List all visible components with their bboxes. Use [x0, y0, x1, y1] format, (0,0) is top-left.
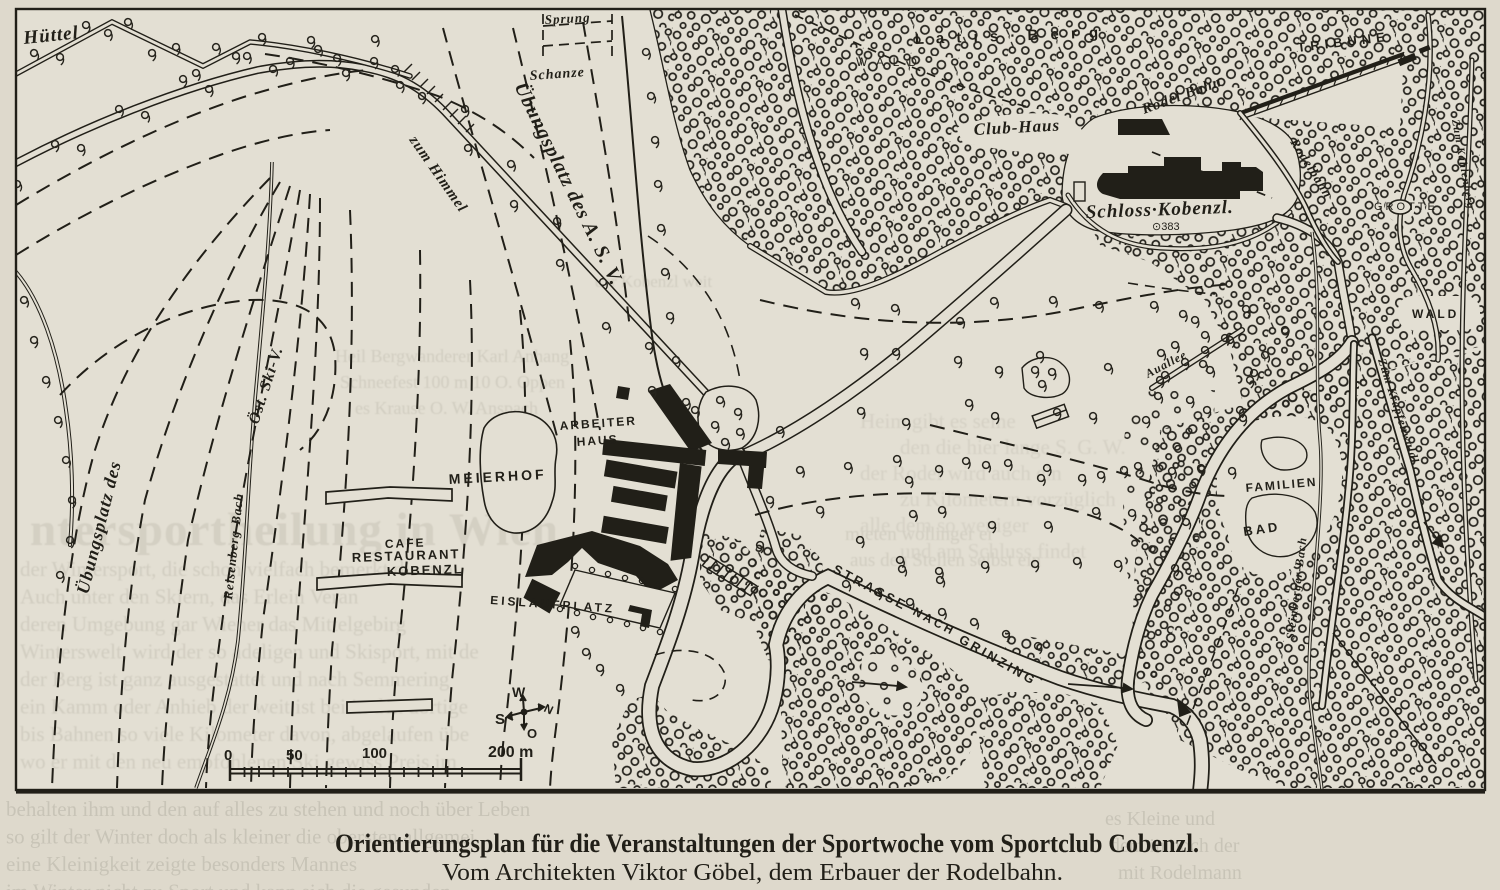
svg-text:behalten ihm und den auf alles: behalten ihm und den auf alles zu stehen… — [6, 797, 531, 821]
svg-text:Heim gibt es seine: Heim gibt es seine — [860, 409, 1016, 433]
svg-text:den die hier lange S. G. W.: den die hier lange S. G. W. — [900, 435, 1126, 459]
svg-text:eine Kleinigkeit zeigte besond: eine Kleinigkeit zeigte besonders Mannes — [6, 852, 357, 876]
svg-text:50: 50 — [286, 747, 303, 764]
svg-text:mit Rodelmann: mit Rodelmann — [1118, 862, 1242, 884]
svg-text:es Kleine und: es Kleine und — [1105, 808, 1215, 830]
svg-text:W: W — [512, 684, 526, 700]
svg-text:Heil Bergwanderer Karl Anhang: Heil Bergwanderer Karl Anhang — [335, 346, 569, 366]
svg-text:der Rodel wird auch ein: der Rodel wird auch ein — [860, 461, 1062, 485]
svg-text:aus den Stellen selbst ein: aus den Stellen selbst ein — [850, 550, 1042, 571]
svg-text:deren Umgebung gar Wiener das: deren Umgebung gar Wiener das Mittelgebi… — [20, 612, 407, 636]
svg-text:⊙383: ⊙383 — [1152, 221, 1180, 233]
svg-text:WALD: WALD — [1412, 307, 1459, 321]
svg-text:bis Bahnen so viele Kilometer: bis Bahnen so viele Kilometer davon, abg… — [20, 722, 469, 746]
svg-text:GROTTE: GROTTE — [1374, 201, 1438, 213]
svg-text:S: S — [495, 711, 505, 728]
svg-text:O: O — [527, 726, 537, 741]
svg-text:W A L D: W A L D — [856, 55, 920, 69]
svg-text:Schneefest 100 m 10 O. Oppen: Schneefest 100 m 10 O. Oppen — [340, 372, 565, 392]
svg-text:zu Kilometern vorzüglich: zu Kilometern vorzüglich — [900, 487, 1116, 511]
svg-text:100: 100 — [362, 745, 387, 762]
svg-text:Winterswelt, wird der so adeli: Winterswelt, wird der so adeligen und Sk… — [20, 640, 479, 664]
svg-text:Orientierungsplan für die Vera: Orientierungsplan für die Veranstaltunge… — [335, 829, 1199, 858]
svg-text:Auch unter den Skiern, das Erl: Auch unter den Skiern, das Erlein Veran — [20, 585, 359, 609]
svg-text:im Winter nicht zu Sport und k: im Winter nicht zu Sport und kann sich d… — [6, 880, 451, 890]
svg-text:mieten wollinger er: mieten wollinger er — [845, 524, 994, 545]
svg-text:KOBENZL: KOBENZL — [387, 561, 464, 579]
svg-text:200 m: 200 m — [488, 744, 533, 761]
svg-text:Sprung: Sprung — [544, 10, 590, 27]
svg-text:HAUS: HAUS — [576, 432, 619, 449]
svg-text:0: 0 — [224, 747, 232, 764]
svg-text:Vom Architekten Viktor Göbel,: Vom Architekten Viktor Göbel, dem Erbaue… — [442, 860, 1063, 886]
